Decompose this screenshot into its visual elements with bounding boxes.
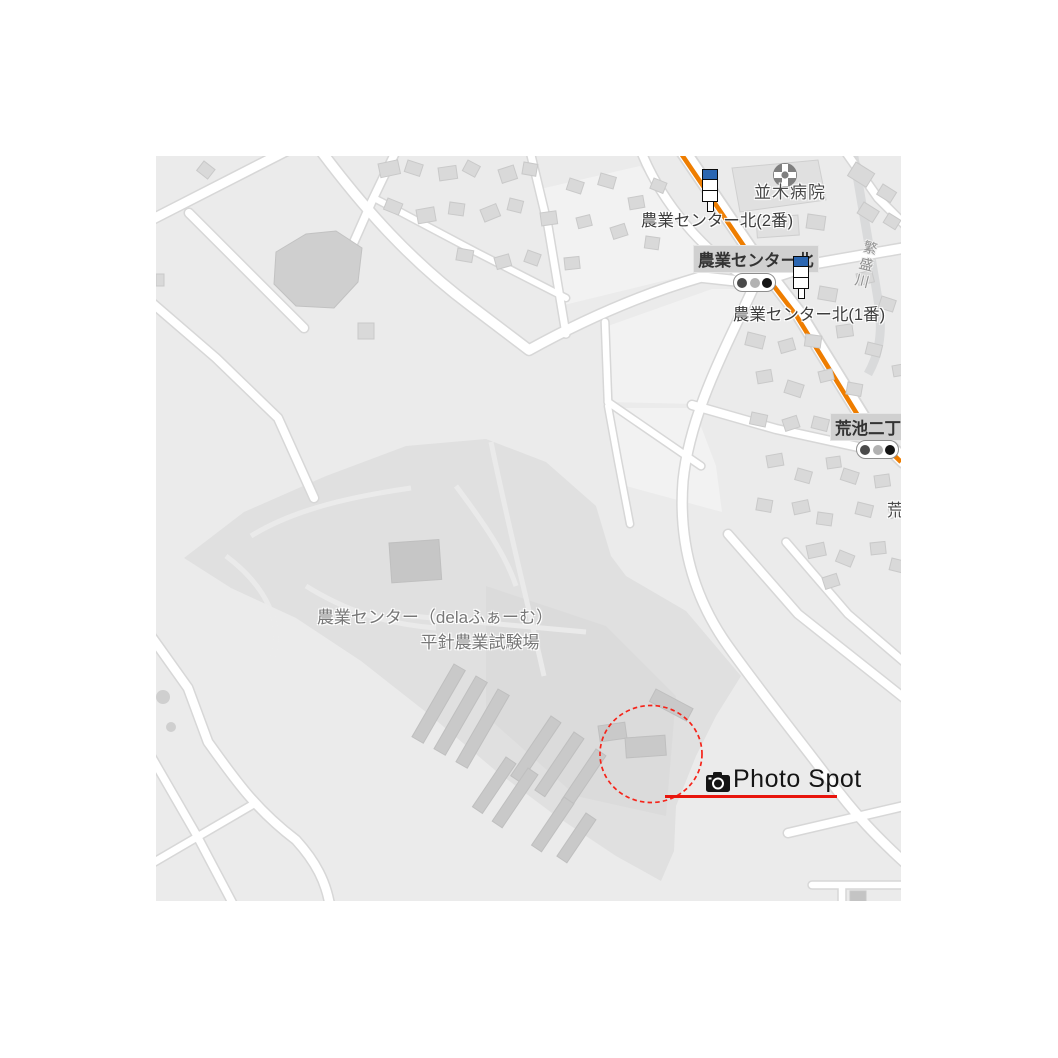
hospital-label: 並木病院 bbox=[740, 184, 840, 202]
traffic-light-icon-1 bbox=[733, 273, 776, 292]
photo-spot-label: Photo Spot bbox=[733, 765, 862, 794]
bus-stop-2-label: 農業センター北(2番) bbox=[617, 213, 817, 230]
map-canvas[interactable]: 並木病院 農業センター北(2番) 農業センター北 農業センター北(1番) 繁盛川… bbox=[156, 156, 901, 901]
tree-dots bbox=[156, 690, 176, 732]
bus-stop-1-label: 農業センター北(1番) bbox=[709, 307, 901, 324]
bus-stop-pole-icon-1 bbox=[793, 256, 809, 299]
intersection-label-araike: 荒池二丁 bbox=[831, 414, 901, 440]
traffic-light-icon-2 bbox=[856, 440, 899, 459]
facility-label-line1: 農業センター（delaふぁーむ） bbox=[285, 609, 585, 627]
camera-icon bbox=[705, 771, 731, 793]
facility-label-line2: 平針農業試験場 bbox=[330, 634, 630, 652]
page: 並木病院 農業センター北(2番) 農業センター北 農業センター北(1番) 繁盛川… bbox=[0, 0, 1058, 1058]
photo-spot-underline bbox=[665, 795, 837, 798]
araike-partial-label: 荒 bbox=[887, 502, 901, 520]
photo-spot-circle bbox=[597, 702, 705, 806]
bus-stop-pole-icon-2 bbox=[702, 169, 718, 212]
